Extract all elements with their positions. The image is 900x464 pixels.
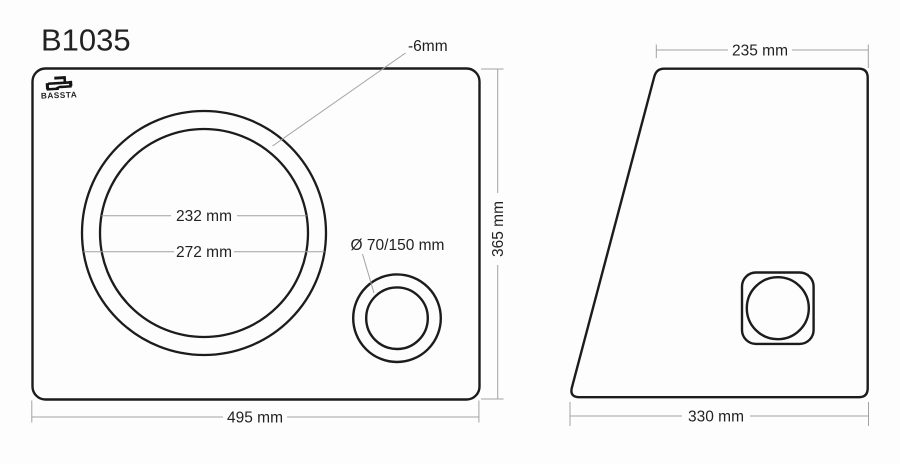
svg-text:-6mm: -6mm <box>408 38 448 55</box>
svg-text:235 mm: 235 mm <box>732 43 788 60</box>
svg-text:330 mm: 330 mm <box>688 408 744 425</box>
svg-text:272 mm: 272 mm <box>176 244 232 261</box>
svg-text:232 mm: 232 mm <box>176 208 232 225</box>
svg-text:Ø 70/150 mm: Ø 70/150 mm <box>351 237 445 254</box>
svg-text:365 mm: 365 mm <box>490 201 507 257</box>
svg-text:495 mm: 495 mm <box>227 409 283 426</box>
svg-text:B1035: B1035 <box>41 23 131 58</box>
svg-text:BASSTA: BASSTA <box>41 90 78 100</box>
